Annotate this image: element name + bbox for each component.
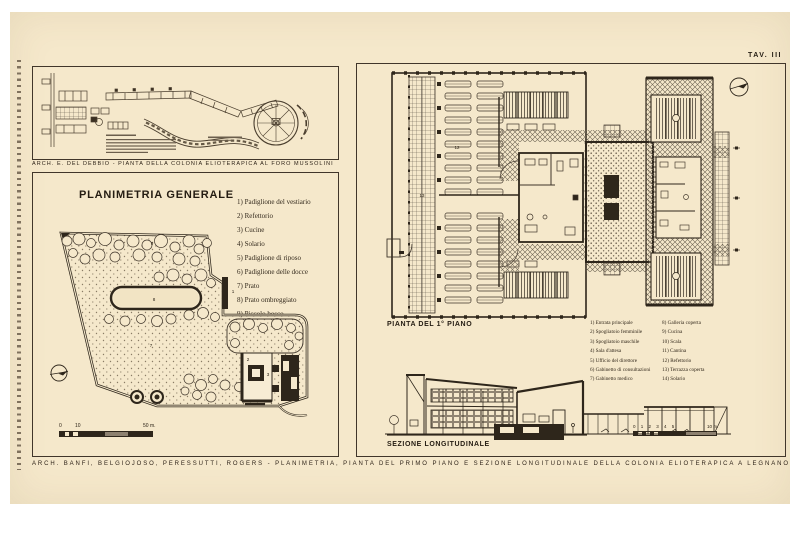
sezione-scale-bar: 0 1 2 3 4 5 10 m. bbox=[633, 424, 743, 436]
plan-tables bbox=[437, 81, 503, 303]
scale-bar bbox=[59, 431, 153, 437]
legend-item: 10) Scala bbox=[662, 338, 704, 347]
legend-item: 8) Galleria coperta bbox=[662, 319, 704, 328]
pianta-title: PIANTA DEL 1° PIANO bbox=[387, 321, 472, 328]
legend-item: 11) Cantina bbox=[662, 347, 704, 356]
plan-number-bosco: 9 bbox=[151, 241, 154, 246]
scanned-plate: TAV. III bbox=[10, 12, 790, 504]
circular-building bbox=[254, 101, 308, 145]
sezione-title: SEZIONE LONGITUDINALE bbox=[387, 441, 490, 448]
legend-item: 4) Sala d'attesa bbox=[590, 347, 650, 356]
plan-number-vestiario: 1 bbox=[232, 289, 235, 294]
scale-ten: 10 bbox=[75, 423, 81, 429]
winding-road bbox=[144, 119, 259, 149]
foro-mussolini-site-plan bbox=[33, 67, 338, 159]
plan-number-terrazza: 13 bbox=[419, 193, 425, 198]
compass-icon bbox=[730, 78, 748, 96]
scale-bar bbox=[633, 431, 717, 436]
medical-rooms bbox=[656, 157, 701, 238]
plate-caption: ARCH. BANFI, BELGIOJOSO, PERESSUTTI, ROG… bbox=[32, 461, 784, 467]
panel-planimetria: PLANIMETRIA GENERALE 1) Padiglione del v… bbox=[32, 172, 339, 457]
entrance-stub bbox=[387, 239, 412, 257]
plan-number-refettorio: 2 bbox=[247, 357, 250, 362]
legend-item: 9) Cucina bbox=[662, 328, 704, 337]
prato-ombreggiato bbox=[111, 287, 201, 309]
planimetria-site-plan: 9 7 8 1 2 3 bbox=[39, 227, 331, 429]
scale-fifty: 50 m. bbox=[143, 423, 156, 429]
section-tree bbox=[390, 416, 399, 435]
section-left-tower bbox=[406, 375, 425, 434]
plan-number-prato: 7 bbox=[150, 343, 153, 348]
planimetria-scale-bar: 0 10 50 m. bbox=[59, 423, 169, 437]
pavilion-vestiario bbox=[222, 277, 228, 309]
pergola-strip bbox=[715, 132, 729, 265]
scale-ticks: 0 1 2 3 4 5 bbox=[633, 424, 676, 429]
colonia-buildings bbox=[242, 353, 299, 406]
plan-number-refettorio: 12 bbox=[454, 145, 460, 150]
scale-end: 10 m. bbox=[707, 424, 718, 429]
scale-zero: 0 bbox=[59, 423, 62, 429]
plate-number: TAV. III bbox=[670, 52, 782, 59]
plan-number-prato-ombreggiato: 8 bbox=[153, 297, 156, 302]
legend-item: 2) Spogliatoio femminile bbox=[590, 328, 650, 337]
side-annotation-ticks bbox=[733, 147, 740, 252]
left-margin-vertical-text bbox=[17, 60, 21, 470]
legend-item: 2) Refettorio bbox=[237, 209, 311, 223]
legend-item: 3) Spogliatoio maschile bbox=[590, 338, 650, 347]
compass-icon bbox=[50, 365, 68, 381]
planimetria-title: PLANIMETRIA GENERALE bbox=[79, 189, 234, 201]
foro-mussolini-caption: ARCH. E. DEL DEBBIO - PIANTA DELLA COLON… bbox=[32, 161, 337, 167]
plan-number-cucine: 3 bbox=[267, 372, 270, 377]
legend-item: 1) Entrata principale bbox=[590, 319, 650, 328]
panel-foro-mussolini bbox=[32, 66, 339, 160]
legend-item: 1) Padiglione del vestiario bbox=[237, 195, 311, 209]
courtyard bbox=[586, 142, 653, 262]
section-basement bbox=[494, 424, 564, 440]
first-floor-plan: 13 12 bbox=[385, 67, 781, 323]
panel-pianta-sezione: 13 12 PIANTA DEL 1° PIANO 1) Entrata pri… bbox=[356, 63, 786, 457]
